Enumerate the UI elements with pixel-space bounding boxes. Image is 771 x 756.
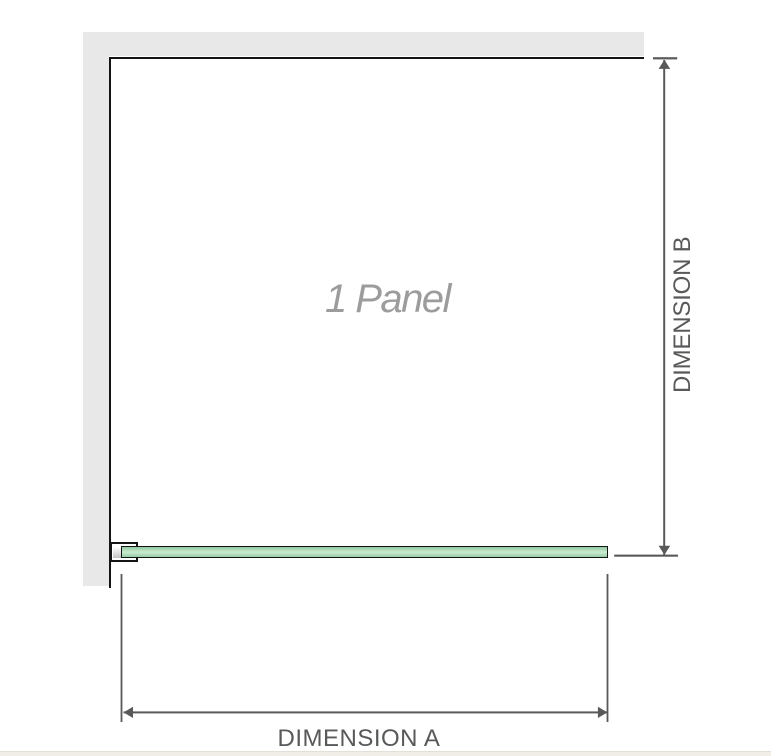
svg-text:DIMENSION B: DIMENSION B <box>669 237 696 393</box>
svg-text:DIMENSION A: DIMENSION A <box>278 725 441 752</box>
